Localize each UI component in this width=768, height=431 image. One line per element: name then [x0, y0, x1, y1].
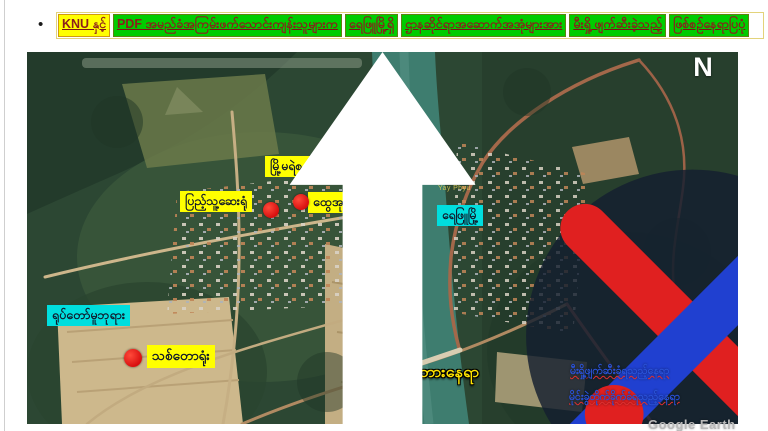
satellite-map-image[interactable]: မြို့မရဲစခန်း ပြည့်သူ့ဆေးရုံ ထွေအုပ်ရုံး… [27, 52, 738, 424]
title-segment-offices: ဌာနဆိုင်ရာအဆောက်အအုံများအား [401, 14, 566, 37]
title-segment-burned: မီးရှို့ ဖျက်ဆီးခဲ့သည့် [569, 14, 666, 37]
title-segment-pdf: PDF အမည်ခံအကြမ်းဖက်သောင်းကျန်းသူများက [113, 14, 342, 37]
title-bullet: • [38, 16, 43, 33]
slide: • KNU နှင့် PDF အမည်ခံအကြမ်းဖက်သောင်းကျန… [0, 0, 768, 431]
title-segment-knu: KNU နှင့် [58, 14, 110, 37]
google-earth-watermark: Google Earth [648, 417, 736, 431]
title-segment-mapnote: ဖြစ်စဉ်နေရာပြပုံ [669, 14, 749, 37]
title-segment-town: ရေဖြူမြို့ရှိ [345, 14, 398, 37]
title-line: KNU နှင့် PDF အမည်ခံအကြမ်းဖက်သောင်းကျန်း… [56, 12, 764, 39]
north-arrow-icon [27, 52, 738, 424]
slide-left-border [4, 0, 5, 431]
